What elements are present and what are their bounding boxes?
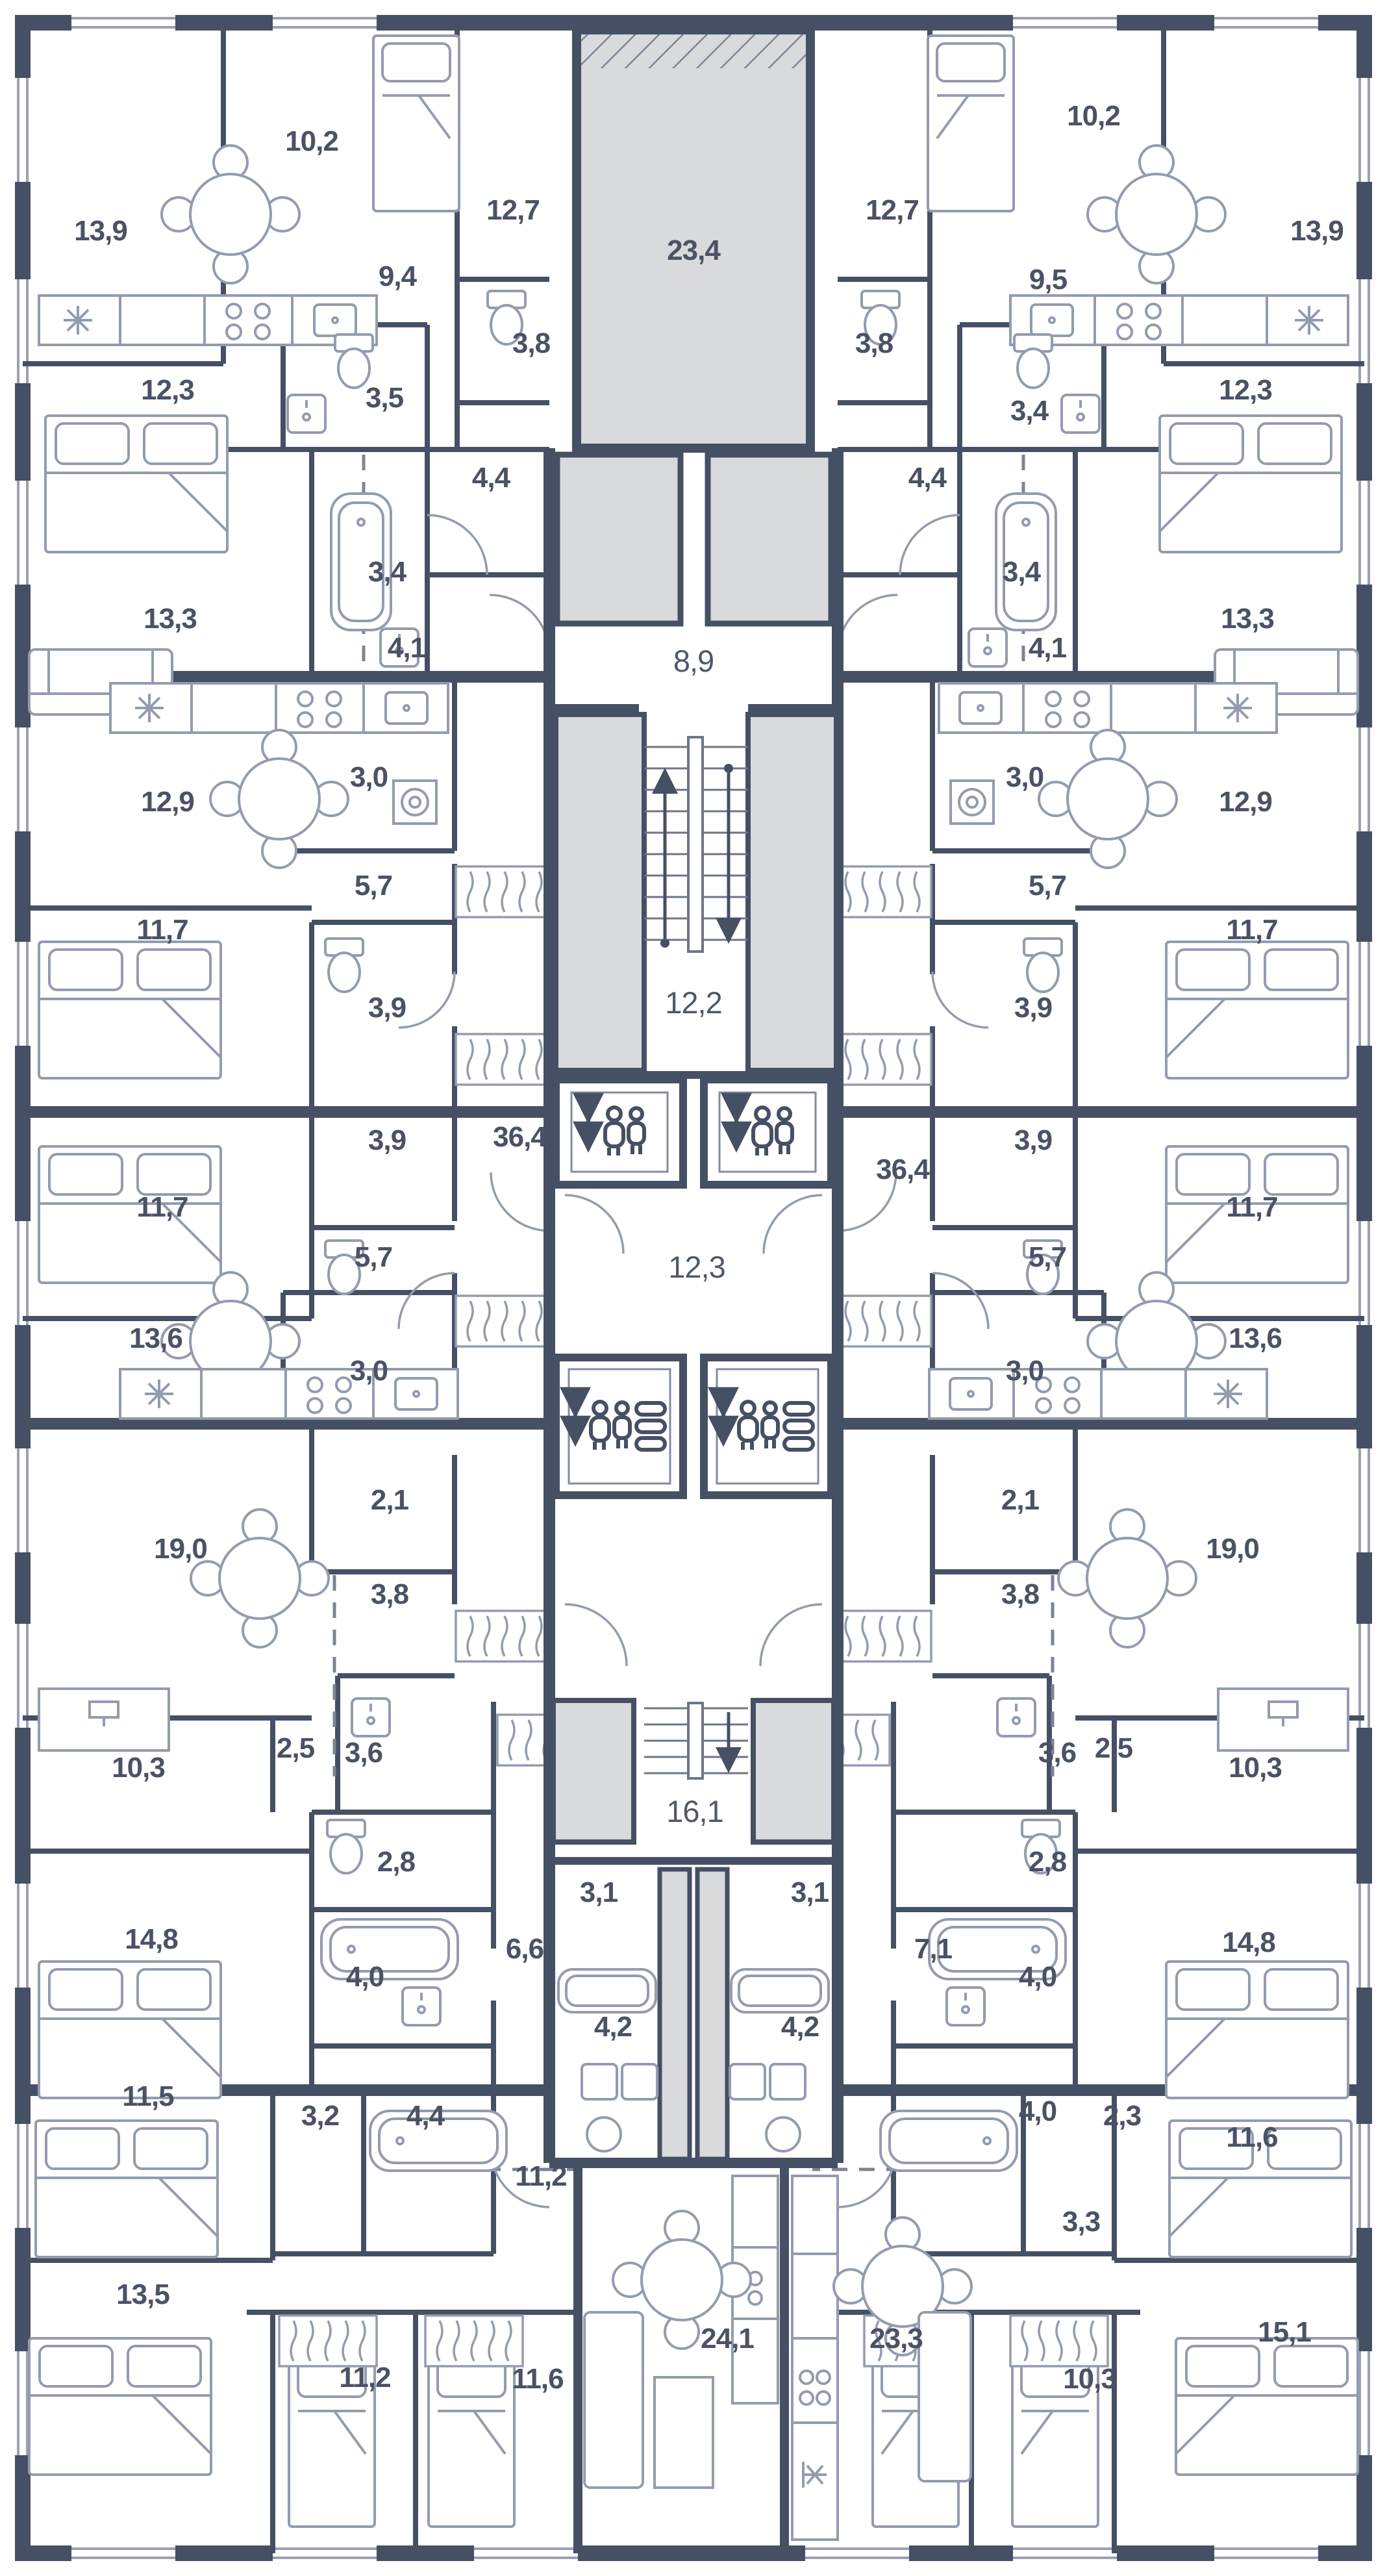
room-area-label: 13,5 (116, 2279, 169, 2310)
room-area-label: 5,7 (355, 870, 392, 902)
room-area-label: 4,1 (1029, 632, 1067, 664)
sink-icon (770, 2064, 805, 2099)
room-area-label: 19,0 (154, 1533, 207, 1565)
room-area-label: 5,7 (355, 1241, 392, 1273)
room-area-label: 12,7 (866, 194, 919, 226)
room-area-label: 4,2 (781, 2011, 819, 2043)
sofa-icon (919, 2312, 971, 2481)
room-area-label: 3,2 (301, 2100, 339, 2132)
room-area-label: 10,3 (1063, 2363, 1116, 2395)
room-area-label: 13,6 (1229, 1322, 1282, 1354)
room-area-label: 13,6 (129, 1322, 182, 1354)
room-area-label: 11,2 (339, 2362, 390, 2393)
room-area-label: 3,5 (366, 382, 404, 414)
room-area-label: 8,9 (673, 644, 714, 678)
room-area-label: 10,3 (1229, 1752, 1282, 1784)
room-area-label: 3,8 (855, 327, 893, 359)
room-area-label: 36,4 (493, 1121, 547, 1153)
room-area-label: 11,5 (122, 2080, 174, 2112)
room-area-label: 16,1 (666, 1794, 723, 1828)
toilet-icon (587, 2117, 621, 2151)
shaft (753, 1700, 834, 1842)
room-area-label: 11,7 (1226, 914, 1277, 946)
room-area-label: 13,3 (1221, 603, 1274, 635)
room-area-label: 3,0 (350, 1355, 388, 1387)
room-area-label: 11,2 (515, 2160, 566, 2192)
room-area-label: 4,0 (1019, 1961, 1056, 1993)
room-area-label: 11,7 (1226, 1191, 1277, 1223)
room-area-label: 23,4 (667, 234, 721, 266)
room-area-label: 3,6 (1038, 1737, 1076, 1769)
room-area-label: 3,6 (345, 1737, 382, 1769)
shaft (660, 1869, 690, 2159)
room-area-label: 9,4 (379, 260, 418, 292)
room-area-label: 13,3 (144, 603, 197, 635)
room-area-label: 2,8 (377, 1846, 416, 1878)
room-area-label: 4,0 (1019, 2095, 1056, 2127)
room-area-label: 23,3 (869, 2323, 923, 2355)
sink-icon (582, 2064, 617, 2099)
room-area-label: 3,8 (1001, 1578, 1040, 1610)
room-area-label: 4,0 (346, 1961, 384, 1993)
room-area-label: 11,6 (1226, 2121, 1277, 2153)
room-area-label: 19,0 (1206, 1533, 1259, 1565)
room-area-label: 3,4 (368, 556, 407, 588)
room-area-label: 12,9 (1219, 786, 1272, 818)
room-area-label: 4,4 (472, 462, 511, 494)
kitchen-counter-icon (792, 2176, 838, 2540)
room-area-label: 4,4 (406, 2100, 445, 2132)
room-area-label: 4,1 (388, 632, 426, 664)
room-area-label: 3,4 (1003, 556, 1042, 588)
room-area-label: 2,3 (1103, 2100, 1141, 2132)
room-area-label: 2,1 (371, 1484, 409, 1516)
shaft (697, 1869, 727, 2159)
room-area-label: 12,2 (665, 985, 721, 1020)
sink-icon (730, 2064, 765, 2099)
floor-plan-svg: 10,213,912,79,43,812,33,54,43,413,34,13,… (0, 0, 1387, 2576)
room-area-label: 3,0 (350, 761, 388, 793)
room-area-label: 24,1 (701, 2323, 754, 2355)
room-area-label: 3,4 (1010, 395, 1049, 427)
room-area-label: 12,3 (668, 1250, 725, 1284)
room-area-label: 36,4 (876, 1154, 930, 1185)
room-area-label: 6,6 (506, 1933, 544, 1965)
room-area-label: 4,2 (594, 2011, 632, 2043)
room-area-label: 10,3 (112, 1752, 165, 1784)
room-area-label: 2,8 (1029, 1846, 1067, 1878)
shaft (748, 714, 836, 1070)
room-area-label: 13,9 (1290, 215, 1343, 247)
room-area-label: 10,2 (285, 125, 338, 157)
room-area-label: 3,8 (512, 327, 551, 359)
room-area-label: 3,1 (580, 1876, 618, 1908)
room-area-label: 15,1 (1258, 2316, 1311, 2348)
room-area-label: 11,7 (136, 914, 188, 946)
room-area-label: 4,4 (908, 462, 947, 494)
room-area-label: 10,2 (1067, 100, 1120, 132)
room-area-label: 12,3 (141, 374, 194, 406)
room-area-label: 3,1 (791, 1876, 829, 1908)
room-area-label: 13,9 (74, 215, 127, 247)
sofa-icon (584, 2312, 643, 2488)
room-area-label: 2,5 (277, 1732, 315, 1764)
room-area-label: 3,9 (368, 1124, 406, 1156)
sink-icon (622, 2064, 657, 2099)
room-area-label: 3,3 (1062, 2206, 1100, 2238)
room-area-label: 3,8 (371, 1578, 409, 1610)
room-area-label: 7,1 (914, 1933, 953, 1965)
room-area-label: 12,9 (141, 786, 194, 818)
toilet-icon (766, 2117, 800, 2151)
shaft (556, 714, 644, 1070)
room-area-label: 5,7 (1029, 1241, 1066, 1273)
shaft (553, 1700, 634, 1842)
tv-stand-icon (655, 2377, 713, 2488)
room-area-label: 14,8 (125, 1923, 178, 1955)
room-area-label: 3,0 (1006, 1355, 1043, 1387)
room-area-label: 11,7 (136, 1191, 188, 1223)
room-area-label: 14,8 (1222, 1926, 1275, 1958)
room-area-label: 12,7 (486, 194, 540, 226)
shaft (557, 455, 681, 624)
floor-plan-page: 10,213,912,79,43,812,33,54,43,413,34,13,… (0, 0, 1387, 2576)
room-area-label: 2,1 (1001, 1484, 1040, 1516)
room-area-label: 11,6 (512, 2363, 563, 2395)
room-area-label: 12,3 (1219, 374, 1272, 406)
shaft-hatch (581, 34, 806, 68)
room-area-label: 3,9 (1014, 992, 1052, 1024)
room-area-label: 5,7 (1029, 870, 1066, 902)
room-area-label: 3,9 (368, 992, 406, 1024)
room-area-label: 2,5 (1095, 1732, 1133, 1764)
shaft (708, 455, 831, 624)
room-area-label: 9,5 (1029, 264, 1068, 296)
room-area-label: 3,0 (1006, 761, 1043, 793)
room-area-label: 3,9 (1014, 1124, 1052, 1156)
